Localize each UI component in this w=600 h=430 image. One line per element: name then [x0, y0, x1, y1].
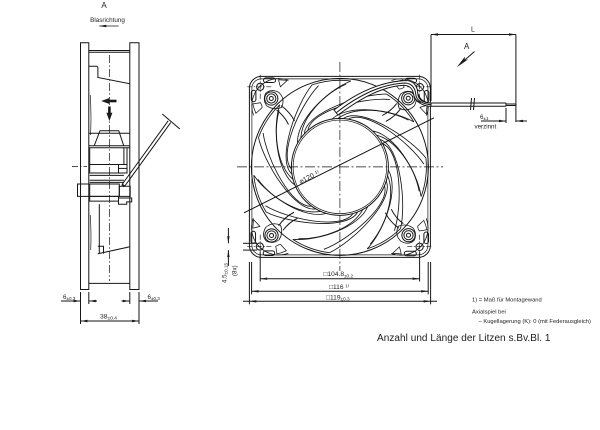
svg-text:4.5±0.15: 4.5±0.15 — [222, 262, 229, 283]
svg-text:A: A — [464, 42, 470, 51]
svg-text:verzinnt: verzinnt — [475, 124, 497, 131]
svg-text:Axialspiel bei: Axialspiel bei — [472, 310, 506, 316]
svg-text:38±0.4: 38±0.4 — [100, 314, 117, 322]
svg-text:□119±0.3: □119±0.3 — [326, 294, 350, 301]
svg-text:6±1: 6±1 — [480, 114, 489, 121]
svg-text:– Kugellagerung (K): 0 (mit Fe: – Kugellagerung (K): 0 (mit Federausglei… — [479, 319, 592, 325]
svg-text:1) = Maß für Montagewand: 1) = Maß für Montagewand — [472, 298, 542, 304]
svg-text:L: L — [471, 27, 475, 34]
svg-text:Blasrichtung: Blasrichtung — [90, 17, 125, 24]
svg-text:□104.8±0.2: □104.8±0.2 — [324, 271, 354, 278]
svg-text:A: A — [101, 1, 107, 10]
svg-text:(8x): (8x) — [232, 265, 239, 276]
svg-text:□116 ¹⁾: □116 ¹⁾ — [329, 283, 350, 291]
svg-text:Anzahl und Länge der Litzen s.: Anzahl und Länge der Litzen s.Bv.Bl. 1 — [377, 333, 551, 344]
svg-text:6±0.3: 6±0.3 — [148, 294, 161, 301]
svg-text:6±0.3: 6±0.3 — [63, 294, 76, 301]
